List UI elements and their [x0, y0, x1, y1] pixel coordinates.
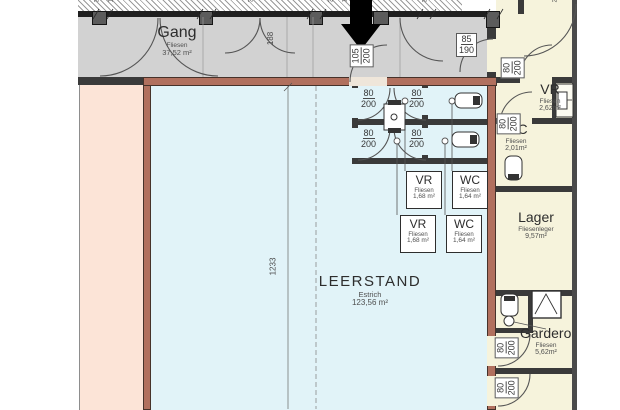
room-area: 1,64 m² — [447, 238, 481, 245]
door-width: 80 — [502, 62, 513, 74]
door-width: 80 — [411, 88, 423, 99]
door-dim-80x200: 80 200 — [361, 88, 376, 110]
door-dim-105x200: 105 200 — [350, 44, 374, 67]
door-height: 190 — [459, 45, 474, 55]
room-area: 2,62m² — [524, 105, 576, 113]
toilet-icon — [505, 156, 522, 180]
room-name: WC — [447, 218, 481, 231]
door-height: 200 — [361, 139, 376, 149]
room-floor: Fliesen — [524, 98, 576, 105]
door-width: 80 — [363, 88, 375, 99]
room-area: 9,57m² — [500, 233, 572, 241]
room-label-wc-bottom: WC Fliesen 1,64 m² — [446, 215, 482, 253]
dim-fragment: 25 — [552, 0, 558, 2]
dim-fragment: 30 — [328, 0, 334, 2]
dim-fragment: 35 — [422, 0, 428, 2]
dim-fragment: 34 — [248, 0, 254, 2]
door-width: 80 — [411, 128, 423, 139]
door-width: 80 — [496, 382, 507, 394]
door-width: 80 — [363, 128, 375, 139]
door-dim-80x200: 80 200 — [495, 337, 519, 358]
door-width: 85 — [461, 34, 473, 45]
door-height: 200 — [362, 48, 372, 63]
door-height: 200 — [507, 380, 517, 395]
door-height: 200 — [509, 116, 519, 131]
room-name: WC — [453, 174, 487, 187]
door-height: 200 — [409, 139, 424, 149]
room-area: 37,52 m² — [142, 49, 212, 57]
dim-fragment: 14 — [342, 0, 348, 2]
room-area: 123,56 m² — [300, 299, 440, 308]
dim-fragment: 35 — [94, 0, 100, 2]
toilet-icon — [452, 132, 479, 147]
door-dim-85x190: 85 190 — [456, 33, 477, 57]
door-width: 80 — [498, 118, 509, 130]
room-label-garderobe: Garderobe Fliesen 5,62m² — [520, 326, 572, 357]
entrance-arrow — [341, 0, 381, 50]
door-dim-80x200: 80 200 — [409, 128, 424, 150]
dim-188: 188 — [266, 32, 275, 45]
door-height: 200 — [513, 60, 523, 75]
room-label-wc-top: WC Fliesen 1,64 m² — [452, 171, 488, 209]
room-area: 1,68 m² — [407, 194, 441, 201]
dim-1233: 1233 — [268, 258, 277, 276]
dim-fragment: 14 — [108, 0, 114, 2]
room-name: VR — [524, 82, 576, 98]
room-name: Gang — [142, 24, 212, 42]
room-label-leerstand: LEERSTAND Estrich 123,56 m² — [300, 274, 440, 308]
room-label-gang: Gang Fliesen 37,52 m² — [142, 24, 212, 58]
room-label-lager: Lager Fliesenleger 9,57m² — [500, 210, 572, 241]
floor-plan: Gang Fliesen 37,52 m² LEERSTAND Estrich … — [0, 0, 620, 410]
door-dim-80x200: 80 200 — [361, 128, 376, 150]
shower-icon — [532, 291, 561, 318]
door-height: 200 — [507, 340, 517, 355]
room-floor: Fliesenleger — [500, 226, 572, 233]
room-floor: Fliesen — [490, 138, 542, 145]
room-area: 2,01m² — [490, 145, 542, 153]
room-label-vr-bottom: VR Fliesen 1,68 m² — [400, 215, 436, 253]
room-label-vr-right: VR Fliesen 2,62m² — [524, 82, 576, 113]
wall-ticks — [93, 9, 503, 19]
door-dim-80x200: 80 200 — [495, 377, 519, 398]
room-floor: Fliesen — [520, 342, 572, 349]
room-area: 1,64 m² — [453, 194, 487, 201]
door-height: 200 — [409, 99, 424, 109]
room-name: Garderobe — [520, 326, 572, 342]
door-dim-80x200: 80 200 — [501, 57, 525, 78]
room-name: VR — [401, 218, 435, 231]
sink-icon — [384, 100, 405, 133]
toilet-icon — [501, 294, 518, 316]
door-dim-80x200: 80 200 — [497, 113, 521, 134]
room-name: VR — [407, 174, 441, 187]
door-height: 200 — [361, 99, 376, 109]
room-label-vr-top: VR Fliesen 1,68 m² — [406, 171, 442, 209]
room-area: 5,62m² — [520, 349, 572, 357]
door-dim-80x200: 80 200 — [409, 88, 424, 110]
toilet-icon — [455, 93, 482, 108]
door-width: 80 — [496, 342, 507, 354]
room-name: LEERSTAND — [300, 274, 440, 291]
door-width: 105 — [351, 47, 362, 64]
room-area: 1,68 m² — [401, 238, 435, 245]
room-name: Lager — [500, 210, 572, 226]
